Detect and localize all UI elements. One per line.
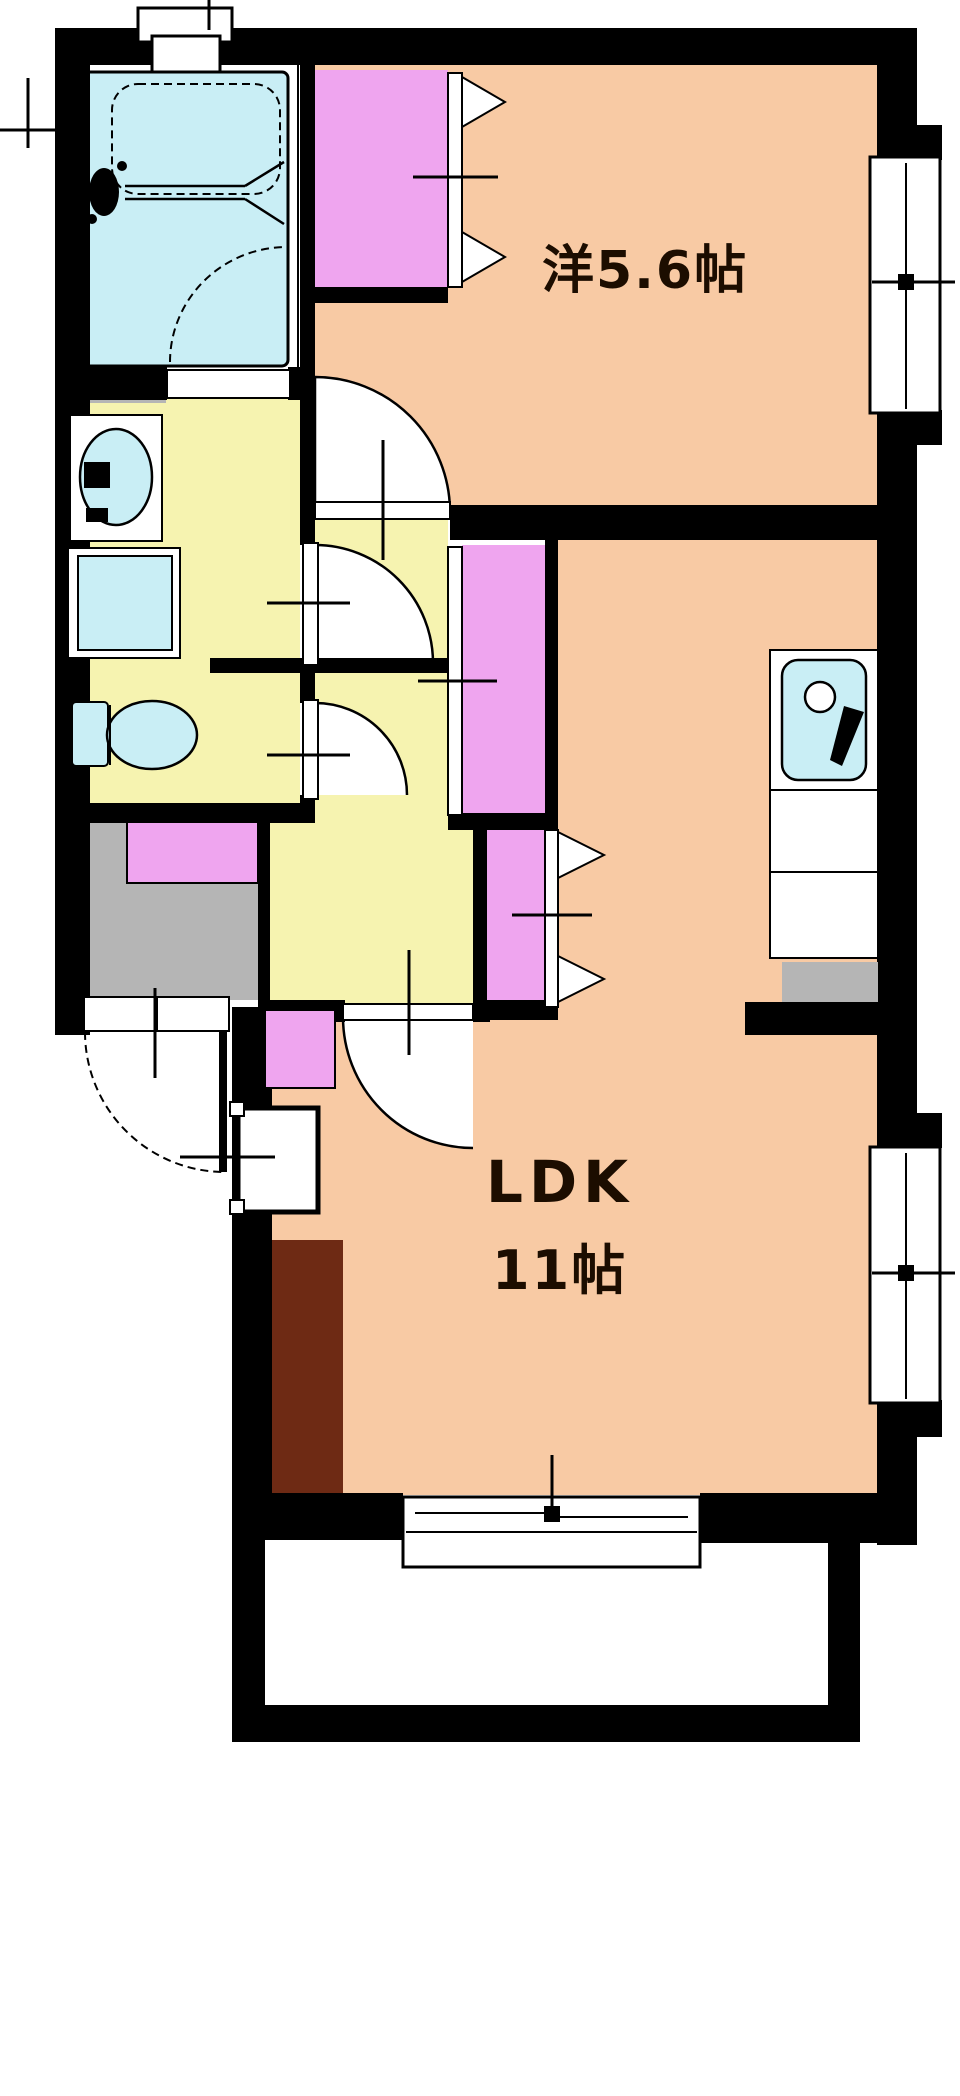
western-room-label: 洋5.6帖 <box>542 228 748 303</box>
wall-bath-closet <box>300 65 315 370</box>
wall-western-ldk <box>450 505 877 540</box>
entrance-step-2 <box>157 997 229 1031</box>
wall-closet-top-bottom <box>315 287 448 303</box>
wall-ldk-bottom-left <box>232 1493 403 1540</box>
floor-plan-drawing <box>0 0 960 2096</box>
wall-closet-ldk <box>545 540 558 832</box>
bathroom-floor <box>76 72 288 366</box>
entrance-door-leaf <box>219 1032 227 1172</box>
ldk-size-label: 11帖 <box>492 1226 627 1305</box>
floor-plan-canvas: 洋5.6帖 LDK 11帖 <box>0 0 960 2096</box>
bath-faucet-dot-1 <box>117 161 127 171</box>
meter-box-hinge-1 <box>230 1102 244 1116</box>
closet-top-door-strip <box>448 73 462 287</box>
wall-entrance-hall <box>258 823 270 1003</box>
closet-mid-lower-floor <box>487 815 545 1007</box>
kitchen-sink-drain <box>805 682 835 712</box>
wall-toilet-upper <box>300 673 315 703</box>
wall-closet-hall <box>473 830 487 1002</box>
wall-closet-mid <box>448 813 558 830</box>
wall-ldk-bottom-right <box>700 1493 877 1543</box>
hall-lower-floor <box>270 815 473 1007</box>
bathroom-window-inner <box>152 36 220 72</box>
washbasin-drain <box>86 508 108 522</box>
wall-window-lug-4 <box>915 1400 942 1437</box>
wall-toilet-bottom <box>90 803 300 823</box>
bath-faucet-blob <box>89 168 119 216</box>
wall-washroom-toilet <box>210 658 447 673</box>
dot-western-window <box>898 274 914 290</box>
wall-balcony-bottom <box>232 1705 860 1742</box>
ldk-corner-cabinet <box>265 1010 335 1088</box>
wall-balcony-right <box>828 1540 860 1742</box>
kitchen-counter-1 <box>770 790 878 872</box>
counter-storage-brown <box>272 1240 343 1493</box>
closet-mid-lower-door-strip <box>545 830 558 1007</box>
balcony-door-meet-dot <box>544 1506 560 1522</box>
wall-window-lug-3 <box>915 1113 942 1148</box>
ldk-label: LDK <box>486 1148 634 1216</box>
meter-box-hinge-2 <box>230 1200 244 1214</box>
bathroom-door-threshold <box>167 370 290 398</box>
toilet-door-leaf <box>303 700 318 799</box>
entrance-step-1 <box>84 997 155 1031</box>
wall-window-lug-1 <box>915 125 942 160</box>
shoe-cabinet <box>127 820 258 883</box>
washer-pan <box>78 556 172 650</box>
bath-faucet-dot-2 <box>87 214 97 224</box>
wall-window-lug-2 <box>915 410 942 445</box>
dot-ldk-window <box>898 1265 914 1281</box>
toilet-bowl <box>107 701 197 769</box>
kitchen-counter-2 <box>770 872 878 958</box>
meter-box <box>238 1108 318 1212</box>
wall-kitchen-stub <box>745 1002 877 1035</box>
wall-bath-bottom-left <box>90 367 167 400</box>
washbasin-faucet <box>84 462 110 488</box>
wall-washroom-hall <box>300 370 315 545</box>
refrigerator-space <box>782 962 878 1002</box>
toilet-tank <box>72 702 108 766</box>
